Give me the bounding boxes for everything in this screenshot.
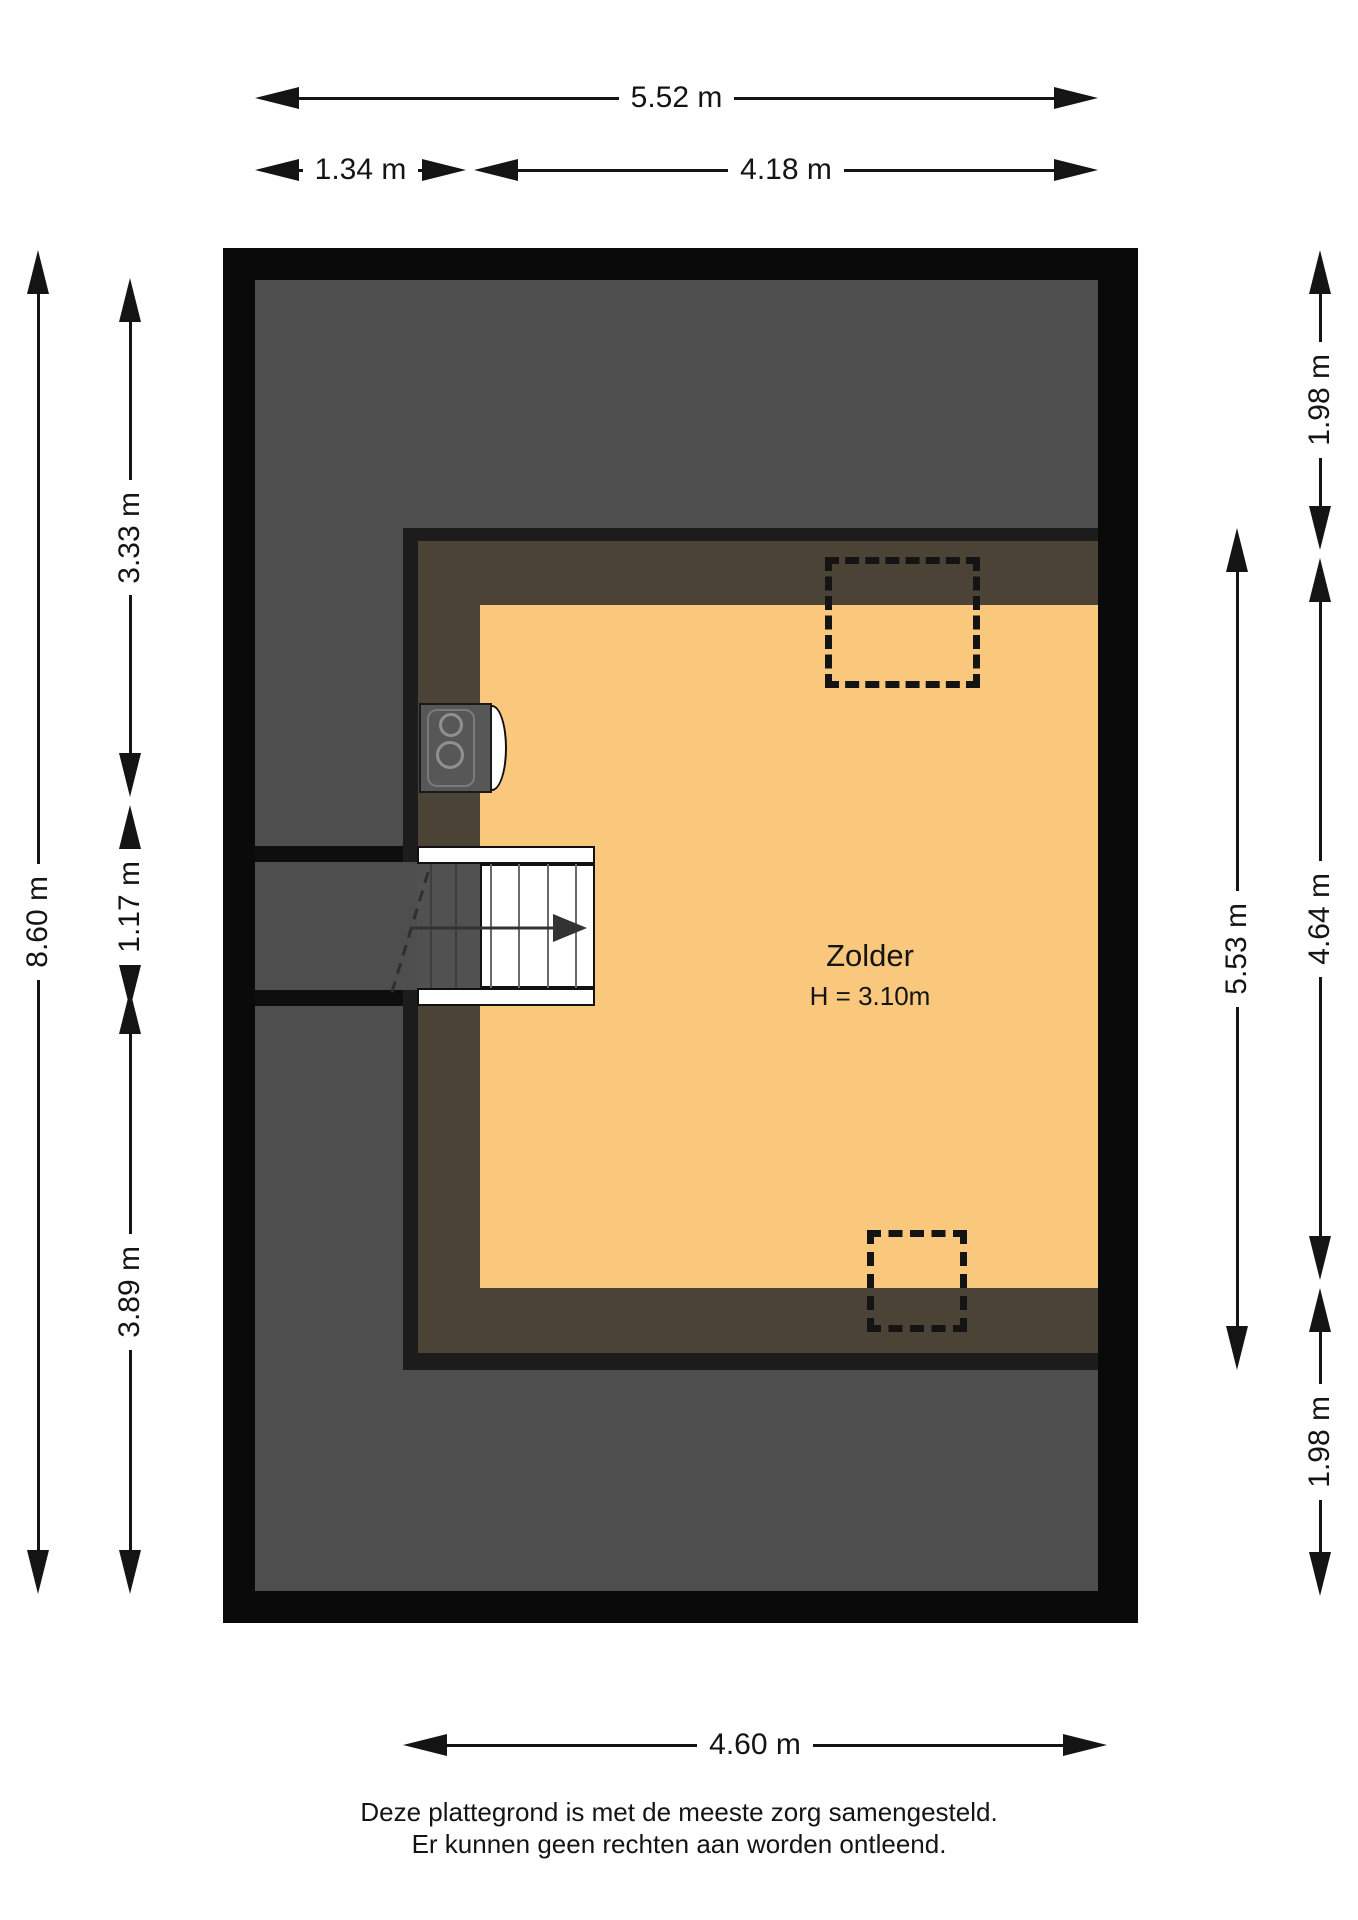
dim-label: 1.17 m	[113, 849, 147, 965]
staircase	[417, 846, 595, 1006]
skylight-top	[825, 557, 980, 688]
arrow-left-icon	[403, 1734, 447, 1756]
arrow-up-icon	[27, 250, 49, 294]
dim-label: 4.64 m	[1303, 861, 1337, 977]
arrow-up-icon	[119, 278, 141, 322]
disclaimer-line-1: Deze plattegrond is met de meeste zorg s…	[0, 1796, 1358, 1828]
dim-label: 1.34 m	[303, 153, 419, 187]
arrow-down-icon	[119, 1550, 141, 1594]
dim-bottom: 4.60 m	[403, 1728, 1107, 1762]
room-ceiling-height: H = 3.10m	[760, 981, 980, 1012]
arrow-right-icon	[1054, 159, 1098, 181]
dim-label: 4.60 m	[697, 1728, 813, 1762]
dim-left-seg2: 1.17 m	[113, 805, 147, 982]
dim-label: 5.52 m	[619, 81, 735, 115]
dim-top-left: 1.34 m	[255, 153, 466, 187]
arrow-right-icon	[1063, 1734, 1107, 1756]
dim-left-seg3: 3.89 m	[113, 990, 147, 1594]
dim-label: 3.33 m	[113, 480, 147, 596]
dim-label: 1.98 m	[1303, 342, 1337, 458]
arrow-up-icon	[1226, 528, 1248, 572]
dim-right-seg2: 4.64 m	[1303, 558, 1337, 1280]
arrow-right-icon	[1054, 87, 1098, 109]
dim-left-seg1: 3.33 m	[113, 278, 147, 797]
arrow-down-icon	[1309, 1236, 1331, 1280]
dim-right-room: 5.53 m	[1220, 528, 1254, 1370]
arrow-right-icon	[422, 159, 466, 181]
room-label: Zolder H = 3.10m	[760, 938, 980, 1012]
dim-label: 5.53 m	[1220, 891, 1254, 1007]
arrow-up-icon	[119, 805, 141, 849]
disclaimer-line-2: Er kunnen geen rechten aan worden ontlee…	[0, 1828, 1358, 1860]
skylight-bottom	[867, 1230, 967, 1332]
arrow-down-icon	[1309, 506, 1331, 550]
arrow-up-icon	[1309, 558, 1331, 602]
arrow-left-icon	[255, 87, 299, 109]
dim-left-total: 8.60 m	[21, 250, 55, 1594]
arrow-up-icon	[119, 990, 141, 1034]
boiler-flue-small	[439, 713, 463, 737]
boiler-flue-large	[436, 741, 464, 769]
dim-top-total: 5.52 m	[255, 81, 1098, 115]
stair-direction-arrow	[385, 846, 595, 1006]
dim-label: 1.98 m	[1303, 1384, 1337, 1500]
dim-label: 8.60 m	[21, 864, 55, 980]
arrow-down-icon	[1226, 1326, 1248, 1370]
floorplan-canvas: Zolder H = 3.10m 5.52 m 1.34 m 4.18 m 4.…	[0, 0, 1358, 1920]
dim-label: 4.18 m	[728, 153, 844, 187]
arrow-down-icon	[1309, 1552, 1331, 1596]
room-name: Zolder	[760, 938, 980, 974]
arrow-left-icon	[474, 159, 518, 181]
disclaimer: Deze plattegrond is met de meeste zorg s…	[0, 1796, 1358, 1860]
dim-top-right: 4.18 m	[474, 153, 1098, 187]
boiler-unit	[419, 703, 492, 793]
arrow-down-icon	[27, 1550, 49, 1594]
arrow-up-icon	[1309, 250, 1331, 294]
dim-right-seg1: 1.98 m	[1303, 250, 1337, 550]
dim-right-seg3: 1.98 m	[1303, 1288, 1337, 1596]
arrow-left-icon	[255, 159, 299, 181]
arrow-down-icon	[119, 753, 141, 797]
dim-label: 3.89 m	[113, 1234, 147, 1350]
arrow-up-icon	[1309, 1288, 1331, 1332]
